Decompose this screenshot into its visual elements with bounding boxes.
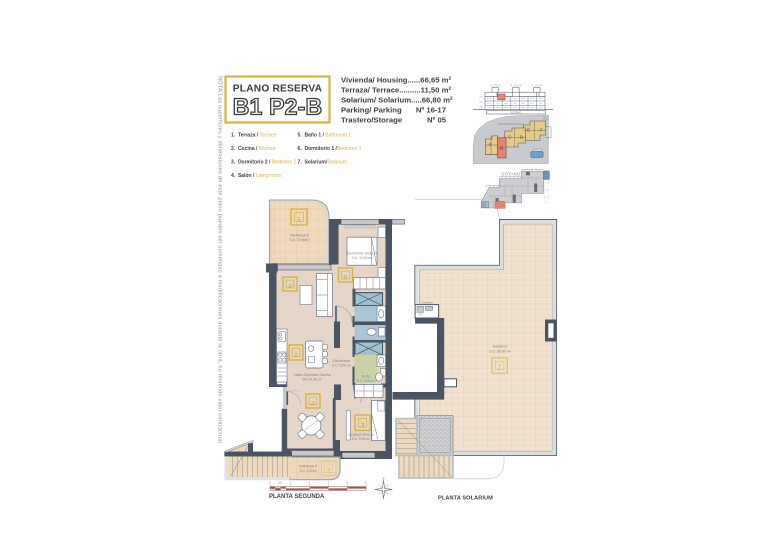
- svg-text:F: F: [540, 128, 543, 133]
- svg-text:E: E: [527, 128, 530, 133]
- svg-text:S.U. 5,50 m²: S.U. 5,50 m²: [332, 364, 352, 368]
- svg-text:0,5: 0,5: [278, 480, 282, 484]
- svg-text:Nº 16-17: Nº 16-17: [416, 106, 446, 115]
- svg-text:Terraza/ Terrace..........11,5: Terraza/ Terrace..........11,50 m²: [341, 86, 451, 95]
- svg-text:1: 1: [327, 468, 331, 475]
- svg-text:7. Solarium/Solarium: 7. Solarium/Solarium: [298, 160, 347, 166]
- svg-text:Dormitorio Suite D: Dormitorio Suite D: [347, 252, 377, 256]
- svg-text:SOTANO: SOTANO: [501, 172, 521, 177]
- svg-text:6: 6: [344, 274, 348, 281]
- svg-text:7: 7: [498, 365, 502, 372]
- svg-text:PB: PB: [479, 106, 483, 109]
- svg-text:Trastero/Storage: Trastero/Storage: [341, 116, 403, 125]
- svg-text:1. Terraza / Terrace: 1. Terraza / Terrace: [231, 133, 276, 139]
- svg-text:Castillete: Castillete: [421, 301, 434, 305]
- svg-text:B1 P2-B: B1 P2-B: [233, 93, 323, 119]
- svg-text:S.U. 14,00 m²: S.U. 14,00 m²: [352, 256, 374, 260]
- svg-text:S.U. 66,80 m²: S.U. 66,80 m²: [489, 350, 511, 354]
- svg-text:Vivienda/ Housing......66,65 m: Vivienda/ Housing......66,65 m²: [341, 76, 452, 85]
- svg-text:PL.SOLAR: PL.SOLAR: [510, 85, 522, 88]
- svg-text:6. Dormitorio 1 /Bedroom 1: 6. Dormitorio 1 /Bedroom 1: [298, 146, 362, 152]
- svg-text:SOTANO: SOTANO: [511, 110, 522, 114]
- svg-text:B: B: [500, 146, 503, 151]
- svg-text:S.U. 2,50m²: S.U. 2,50m²: [299, 469, 316, 473]
- svg-text:Solarium/ Solarium.....66,80 m: Solarium/ Solarium.....66,80 m²: [341, 96, 453, 105]
- svg-text:4: 4: [311, 400, 315, 407]
- svg-text:3: 3: [361, 421, 365, 430]
- svg-text:Salón-Comedor-Cocina: Salón-Comedor-Cocina: [293, 373, 331, 377]
- svg-text:B.S.: B.S.: [419, 314, 424, 317]
- svg-text:1: 1: [297, 216, 301, 223]
- svg-text:Solarium: Solarium: [493, 345, 508, 349]
- svg-text:Nº 05: Nº 05: [427, 116, 447, 125]
- svg-text:Distribuidor: Distribuidor: [332, 359, 351, 363]
- svg-text:PL.SOLAR: PL.SOLAR: [489, 85, 501, 88]
- svg-text:NOTA:Las superficies y dimensi: NOTA:Las superficies y dimensiones de es…: [217, 76, 223, 445]
- svg-text:PLANTA SEGUNDA: PLANTA SEGUNDA: [269, 494, 325, 500]
- svg-text:5. Baño 1 / Bathroom 1: 5. Baño 1 / Bathroom 1: [298, 133, 352, 139]
- svg-text:Parking/ Parking: Parking/ Parking: [341, 106, 402, 115]
- svg-text:PLANTA SOLARIUM: PLANTA SOLARIUM: [438, 496, 493, 502]
- svg-text:S.U. 15,60m²: S.U. 15,60m²: [290, 238, 311, 242]
- svg-text:4. Salón / Living room: 4. Salón / Living room: [231, 173, 282, 179]
- svg-text:D: D: [520, 135, 523, 140]
- svg-text:SA.CA.30 m²: SA.CA.30 m²: [302, 378, 323, 382]
- svg-text:2. Cocina / Kitchen: 2. Cocina / Kitchen: [231, 146, 276, 152]
- svg-text:S.U. 8,50 m²: S.U. 8,50 m²: [352, 437, 371, 441]
- svg-text:2: 2: [294, 352, 298, 359]
- svg-text:B.2. 3,60 m²: B.2. 3,60 m²: [357, 379, 376, 383]
- svg-text:METROS: METROS: [271, 489, 281, 491]
- svg-text:3. Dormitorio 2 / Bedroom 2: 3. Dormitorio 2 / Bedroom 2: [231, 160, 297, 166]
- svg-text:PL.SOLAR: PL.SOLAR: [531, 85, 543, 88]
- svg-text:4: 4: [288, 283, 292, 290]
